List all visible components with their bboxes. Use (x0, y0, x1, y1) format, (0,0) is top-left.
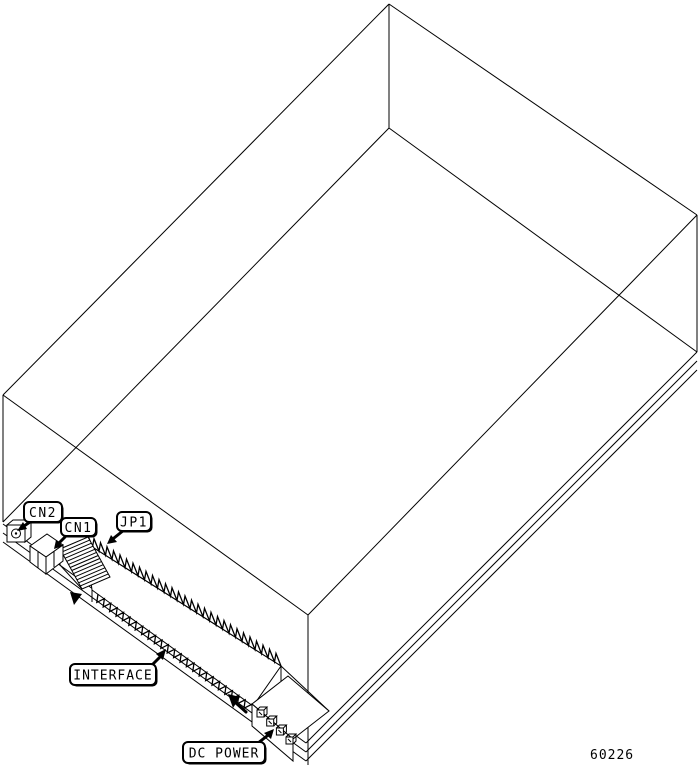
pin1-marker-left (70, 592, 82, 605)
technical-drawing-page: CN2 CN1 JP1 INTERFACE (0, 0, 699, 777)
callout-dc-power: DC POWER (183, 729, 274, 765)
connector-panel (7, 520, 329, 761)
chassis-wireframe (3, 4, 697, 765)
cn2-label: CN2 (29, 506, 57, 521)
callout-interface: INTERFACE (70, 649, 166, 687)
interface-label: INTERFACE (73, 669, 152, 684)
callout-cn2: CN2 (17, 502, 64, 531)
cn1-connector (30, 534, 63, 574)
jp1-label: JP1 (120, 516, 148, 531)
dc-power-label: DC POWER (189, 747, 260, 762)
figure-number: 60226 (590, 748, 634, 763)
isometric-drive-drawing: CN2 CN1 JP1 INTERFACE (0, 0, 699, 777)
cn1-label: CN1 (65, 521, 93, 536)
callout-jp1: JP1 (107, 512, 153, 544)
